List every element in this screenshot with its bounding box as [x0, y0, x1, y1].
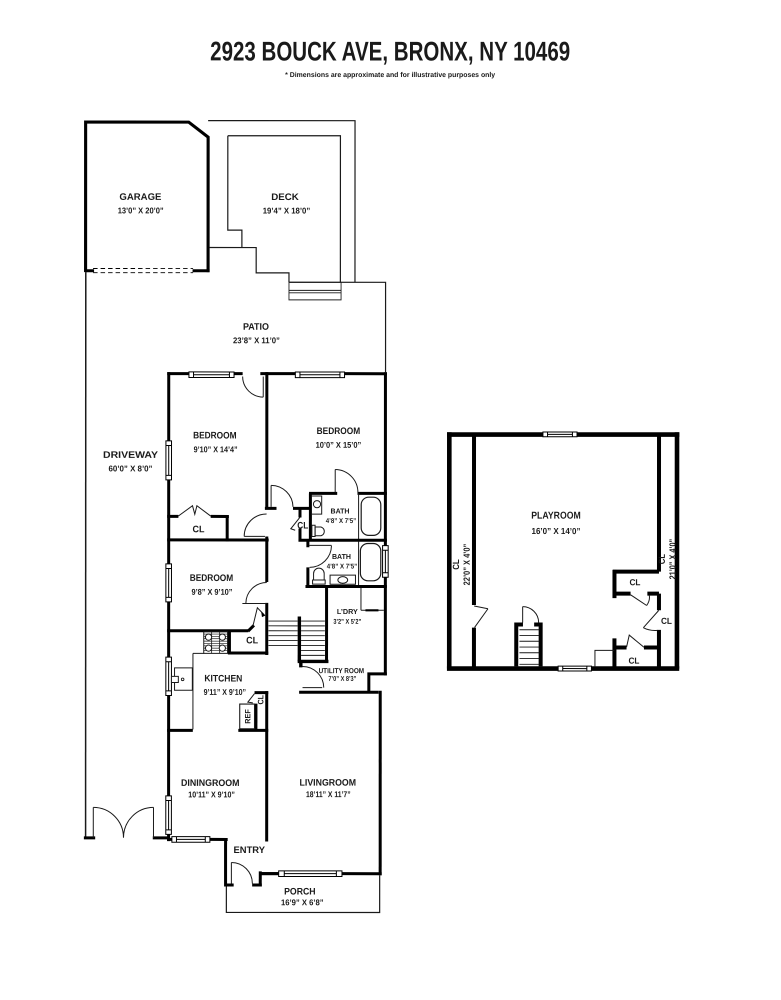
svg-text:PORCH: PORCH [284, 886, 316, 897]
svg-text:60’0” X 8’0”: 60’0” X 8’0” [109, 463, 153, 473]
svg-text:CL: CL [628, 656, 640, 666]
svg-text:CL: CL [246, 635, 258, 646]
svg-text:10’0” X 15’0”: 10’0” X 15’0” [316, 440, 362, 450]
svg-text:CL: CL [256, 695, 265, 705]
svg-text:3’2” X 5’2”: 3’2” X 5’2” [333, 619, 361, 626]
svg-text:CL: CL [657, 554, 667, 565]
svg-text:18’11” X 11’7”: 18’11” X 11’7” [306, 789, 351, 799]
svg-text:DECK: DECK [271, 192, 299, 203]
svg-text:CL: CL [629, 577, 641, 587]
svg-text:KITCHEN: KITCHEN [204, 673, 242, 684]
svg-text:16’0” X 14’0”: 16’0” X 14’0” [531, 526, 580, 536]
svg-text:CL: CL [661, 616, 673, 626]
svg-text:CL: CL [451, 559, 461, 570]
svg-text:PATIO: PATIO [243, 322, 269, 333]
svg-text:L’DRY: L’DRY [337, 607, 358, 616]
svg-text:9’10” X 14’4”: 9’10” X 14’4” [194, 444, 238, 454]
svg-text:13’0” X 20’0”: 13’0” X 20’0” [118, 205, 164, 215]
svg-text:GARAGE: GARAGE [119, 192, 161, 203]
svg-text:16’9” X 6’8”: 16’9” X 6’8” [281, 897, 324, 907]
svg-text:22’0” X 4’0”: 22’0” X 4’0” [462, 544, 472, 586]
svg-text:DININGROOM: DININGROOM [181, 778, 240, 789]
svg-text:4’8” X 7’5”: 4’8” X 7’5” [326, 518, 357, 525]
svg-text:BEDROOM: BEDROOM [190, 573, 234, 584]
svg-text:23’8” X 11’0”: 23’8” X 11’0” [233, 335, 280, 345]
svg-text:BEDROOM: BEDROOM [193, 430, 237, 441]
svg-text:PLAYROOM: PLAYROOM [531, 511, 581, 522]
svg-text:9’11” X 9’10”: 9’11” X 9’10” [204, 687, 247, 697]
svg-text:UTILITY ROOM: UTILITY ROOM [319, 666, 365, 675]
svg-text:* Dimensions are approximate a: * Dimensions are approximate and for ill… [285, 72, 495, 79]
svg-text:BEDROOM: BEDROOM [317, 426, 361, 437]
svg-text:19’4” X 18’0”: 19’4” X 18’0” [263, 205, 311, 215]
svg-text:REF: REF [243, 709, 252, 724]
svg-text:DRIVEWAY: DRIVEWAY [103, 450, 159, 461]
svg-text:LIVINGROOM: LIVINGROOM [300, 778, 357, 789]
svg-text:CL: CL [192, 524, 204, 535]
svg-text:7’0” X 8’3”: 7’0” X 8’3” [328, 676, 356, 683]
svg-text:ENTRY: ENTRY [234, 845, 266, 856]
svg-text:10’11” X 9’10”: 10’11” X 9’10” [188, 789, 235, 799]
svg-text:2923 BOUCK AVE, BRONX, NY 1046: 2923 BOUCK AVE, BRONX, NY 10469 [210, 36, 570, 66]
svg-text:4’8” X 7’5”: 4’8” X 7’5” [327, 563, 358, 570]
svg-text:BATH: BATH [332, 552, 351, 561]
svg-text:BATH: BATH [330, 506, 349, 515]
svg-text:CL: CL [297, 520, 308, 531]
svg-text:21’0” X 4’0”: 21’0” X 4’0” [668, 539, 678, 580]
svg-text:9’8” X 9’10”: 9’8” X 9’10” [191, 587, 232, 597]
